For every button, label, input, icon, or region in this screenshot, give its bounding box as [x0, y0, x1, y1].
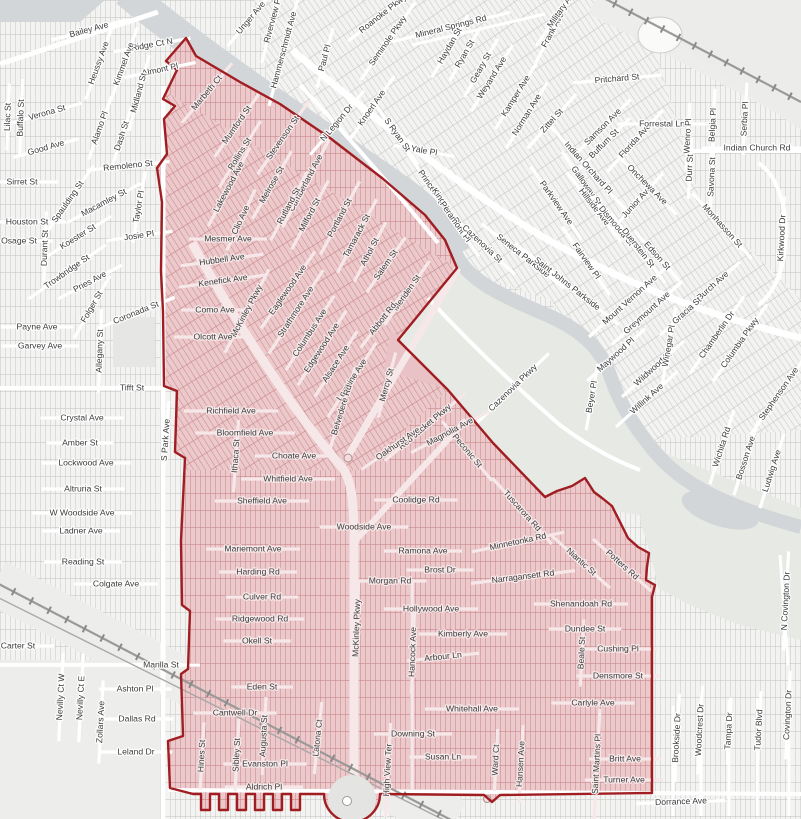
street-label: Wenro Pl	[681, 118, 693, 154]
map-viewport[interactable]: Bailey AveRidge Ct NAlmont PlHeussy AveK…	[0, 0, 801, 819]
street-label: Ramona Ave	[398, 545, 447, 555]
street-label: Cantwell Dr	[213, 707, 258, 717]
street-label: Ridgewood Rd	[232, 613, 289, 623]
street-label: Eden St	[247, 681, 278, 691]
street-label: Densmore St	[593, 670, 644, 680]
street-label: Sibley St	[230, 737, 242, 772]
street-label: Buffalo St	[15, 99, 26, 137]
street-label: Altruria St	[64, 483, 102, 493]
street-label: Whitehall Ave	[446, 703, 498, 713]
street-label: Lockwood Ave	[58, 457, 113, 467]
street-label: Dallas Rd	[118, 713, 155, 723]
street-label: Tifft St	[120, 382, 145, 392]
street-label: Amber St	[62, 437, 98, 447]
city-map[interactable]: Bailey AveRidge Ct NAlmont PlHeussy AveK…	[0, 0, 801, 819]
street-label: Harding Rd	[236, 566, 280, 576]
street-label: Cushing Pl	[597, 643, 639, 653]
street-label: Dundee St	[565, 623, 606, 633]
street-label: Ward Ct	[489, 744, 501, 776]
street-label: Bloomfield Ave	[217, 427, 274, 437]
street-label: Mesmer Ave	[204, 233, 252, 243]
street-label: Lilac St	[2, 102, 13, 131]
street-label: Durant St	[39, 229, 50, 266]
street-label: Shenandoah Rd	[550, 598, 612, 608]
street-label: W Woodside Ave	[49, 507, 114, 517]
street-label: Susan Ln	[425, 751, 462, 761]
street-label: Leland Dr	[117, 746, 154, 756]
street-label: Payne Ave	[17, 321, 58, 331]
street-label: Brost Dr	[424, 564, 456, 574]
street-label: Ladner Ave	[59, 525, 103, 535]
street-label: Downing St	[391, 728, 436, 738]
street-label: Osage St	[1, 235, 37, 245]
street-label: Dorrance Ave	[655, 795, 707, 807]
street-label: Hines St	[195, 739, 207, 773]
street-label: Durr St	[684, 154, 695, 182]
street-label: Whitfield Ave	[263, 473, 313, 483]
street-label: Carlyle Ave	[571, 697, 615, 707]
street-label: Sheffield Ave	[237, 495, 287, 505]
street-label: Mariemont Ave	[224, 543, 281, 553]
street-label: Forrestal Ln	[639, 118, 685, 128]
street-label: Culver Rd	[243, 591, 281, 601]
street-label: Kimberly Ave	[438, 628, 488, 638]
street-label: Choate Ave	[272, 450, 316, 460]
street-label: Marilla St	[143, 659, 179, 669]
street-label: Garvey Ave	[18, 340, 62, 350]
street-label: Tampa Dr	[722, 712, 734, 750]
street-label: Sirret St	[6, 176, 38, 186]
street-label: Turner Ave	[603, 774, 645, 784]
street-label: Indian Church Rd	[724, 142, 791, 152]
street-label: Reading St	[62, 556, 105, 566]
street-label: Hancock Ave	[406, 627, 418, 678]
street-label: Houston St	[6, 216, 49, 226]
street-label: Aldrich Pl	[246, 781, 282, 791]
street-label: Olcott Ave	[193, 331, 232, 341]
street-label: Belgia Pl	[706, 108, 718, 142]
street-label: Carter St	[1, 640, 36, 650]
street-label: Woodside Ave	[337, 521, 392, 531]
street-label: Coolidge Rd	[392, 494, 440, 504]
street-label: Savona St	[705, 156, 717, 197]
street-label: McKinley Pkwy	[350, 598, 362, 657]
street-label: Evanston Pl	[242, 758, 288, 768]
street-label: Morgan Rd	[369, 575, 412, 585]
street-label: Como Ave	[195, 304, 235, 314]
street-label: Hollywood Ave	[403, 603, 459, 613]
street-label: Allegany St	[94, 328, 106, 372]
street-label: Colgate Ave	[93, 578, 139, 588]
street-label: Serbia Pl	[738, 101, 750, 136]
street-label: Crystal Ave	[60, 412, 104, 422]
street-label: Beale St	[575, 636, 587, 670]
street-label: Okell St	[242, 635, 273, 645]
street-label: Britt Ave	[609, 753, 641, 763]
street-label: Richfield Ave	[206, 405, 256, 415]
street-label: Ashton Pl	[117, 683, 154, 693]
